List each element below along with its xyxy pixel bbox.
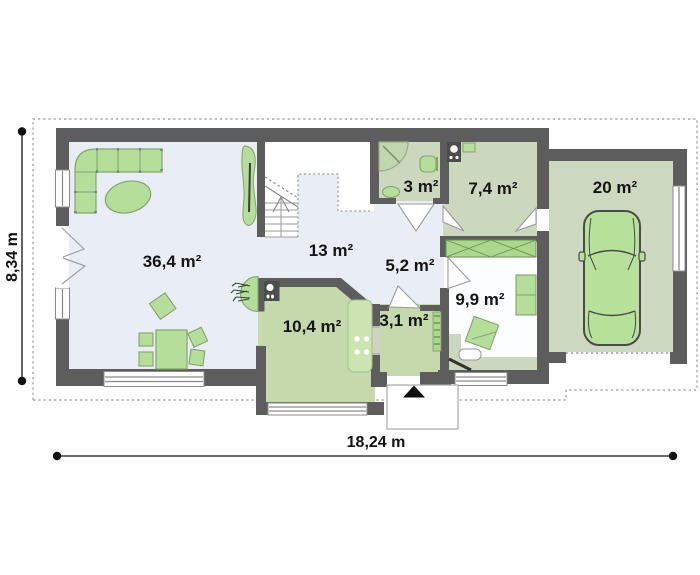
svg-text:13 m²: 13 m²: [309, 241, 354, 260]
svg-text:3,1 m²: 3,1 m²: [379, 311, 428, 330]
svg-text:20 m²: 20 m²: [593, 178, 638, 197]
svg-text:5,2 m²: 5,2 m²: [385, 256, 434, 275]
svg-text:18,24 m: 18,24 m: [347, 434, 406, 451]
svg-text:36,4 m²: 36,4 m²: [143, 252, 202, 271]
svg-text:7,4 m²: 7,4 m²: [468, 179, 517, 198]
svg-text:10,4 m²: 10,4 m²: [283, 317, 342, 336]
svg-text:8,34 m: 8,34 m: [4, 232, 21, 282]
svg-text:9,9 m²: 9,9 m²: [455, 290, 504, 309]
svg-text:3 m²: 3 m²: [404, 177, 439, 196]
